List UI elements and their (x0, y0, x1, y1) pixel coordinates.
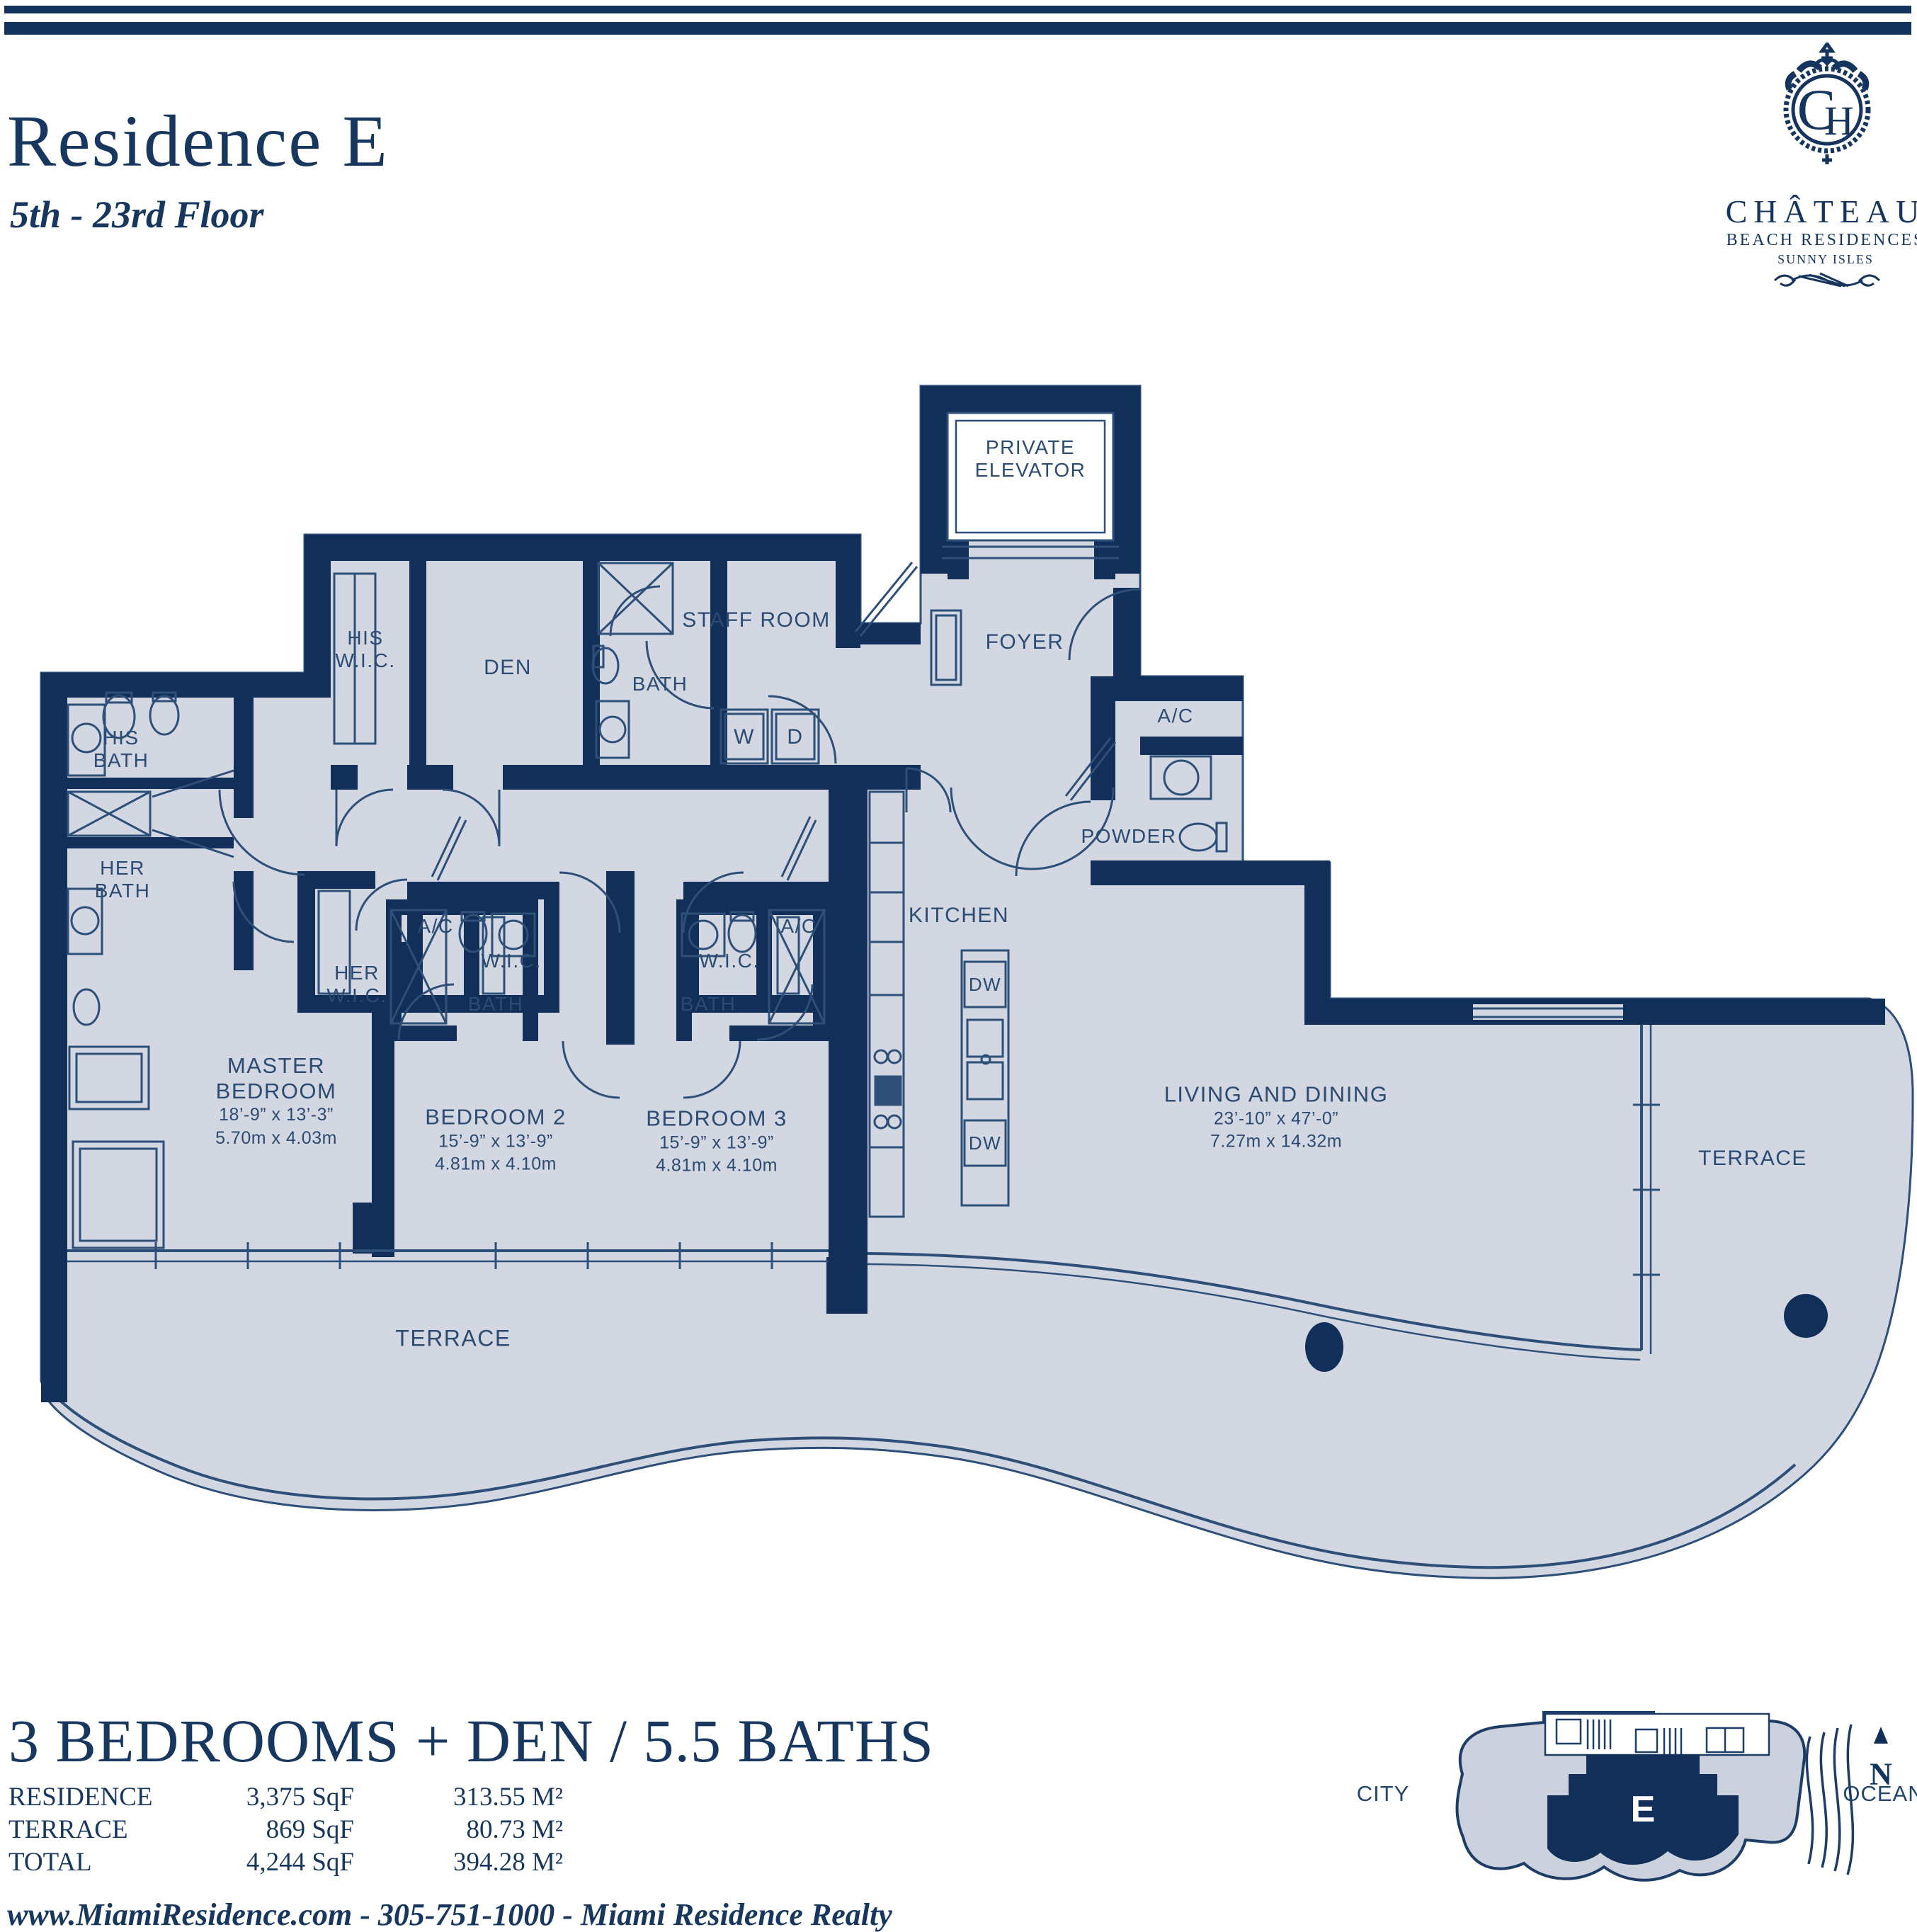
label-his-wic: HIS W.I.C. (335, 627, 395, 672)
label-wic-right: W.I.C. (699, 950, 759, 972)
label-his-bath: HIS BATH (93, 727, 149, 772)
room-bedroom-2: BEDROOM 2 15’-9” x 13’-9” 4.81m x 4.10m (425, 1105, 567, 1176)
room-living-dining: LIVING AND DINING 23’-10” x 47’-0” 7.27m… (1164, 1082, 1389, 1154)
private-elevator-cab (942, 413, 1119, 558)
summary-row-sqf: 3,375 SqF (184, 1782, 354, 1812)
label-ac-right: A/C (780, 915, 817, 938)
keymap-city-label: CITY (1357, 1781, 1410, 1807)
label-dw-top: DW (969, 974, 1001, 996)
label-den: DEN (484, 656, 532, 681)
room-name: MASTER BEDROOM (215, 1053, 337, 1103)
label-private-elevator: PRIVATE ELEVATOR (975, 436, 1086, 482)
room-dim-ft: 15’-9” x 13’-9” (646, 1131, 787, 1154)
room-name: BEDROOM 2 (425, 1105, 567, 1130)
summary-row-m2: 394.28 M² (382, 1847, 563, 1877)
keymap-core (1545, 1714, 1769, 1755)
room-dim-m: 7.27m x 14.32m (1164, 1130, 1389, 1154)
room-bedroom-3: BEDROOM 3 15’-9” x 13’-9” 4.81m x 4.10m (646, 1106, 787, 1178)
room-name: LIVING AND DINING (1164, 1082, 1389, 1108)
floor-plan-svg (0, 0, 1917, 1932)
keymap-north-label: N (1870, 1756, 1892, 1792)
label-her-wic: HER W.I.C. (326, 962, 387, 1007)
room-dim-m: 4.81m x 4.10m (425, 1153, 567, 1176)
label-wic-left: W.I.C. (481, 950, 541, 972)
label-ac-foyer: A/C (1157, 705, 1193, 727)
label-bath2: BATH (468, 993, 524, 1016)
summary-row-sqf: 4,244 SqF (184, 1847, 354, 1877)
keymap-unit-label: E (1631, 1788, 1656, 1831)
footer-contact: www.MiamiResidence.com - 305-751-1000 - … (7, 1897, 892, 1932)
label-foyer: FOYER (986, 630, 1064, 655)
room-dim-m: 5.70m x 4.03m (215, 1127, 337, 1150)
summary-row-sqf: 869 SqF (184, 1814, 354, 1845)
label-bath3: BATH (681, 993, 736, 1016)
summary-row-m2: 313.55 M² (382, 1782, 563, 1812)
room-name: BEDROOM 3 (646, 1106, 787, 1132)
room-dim-ft: 15’-9” x 13’-9” (425, 1130, 567, 1153)
room-dim-ft: 18’-9” x 13’-3” (215, 1103, 337, 1127)
keymap-svg (1331, 1693, 1917, 1905)
label-terrace-right: TERRACE (1698, 1147, 1807, 1171)
label-staff-room: STAFF ROOM (682, 608, 830, 633)
label-ac-left: A/C (417, 915, 453, 938)
room-dim-m: 4.81m x 4.10m (646, 1154, 787, 1178)
label-powder: POWDER (1081, 825, 1177, 848)
summary-headline: 3 BEDROOMS + DEN / 5.5 BATHS (8, 1705, 934, 1776)
label-staff-bath: BATH (632, 673, 688, 695)
label-kitchen: KITCHEN (909, 904, 1009, 928)
floorplan-page: Residence E 5th - 23rd Floor C H CHÂTEAU… (0, 0, 1917, 1932)
room-dim-ft: 23’-10” x 47’-0” (1164, 1107, 1389, 1130)
label-dryer: D (787, 725, 803, 750)
summary-row-m2: 80.73 M² (382, 1814, 563, 1845)
label-terrace-left: TERRACE (395, 1326, 511, 1352)
label-washer: W (734, 725, 755, 750)
room-master-bedroom: MASTER BEDROOM 18’-9” x 13’-3” 5.70m x 4… (215, 1053, 337, 1149)
keymap-north-arrow-icon (1874, 1727, 1888, 1744)
label-dw-bottom: DW (969, 1133, 1001, 1154)
label-her-bath: HER BATH (95, 857, 151, 902)
